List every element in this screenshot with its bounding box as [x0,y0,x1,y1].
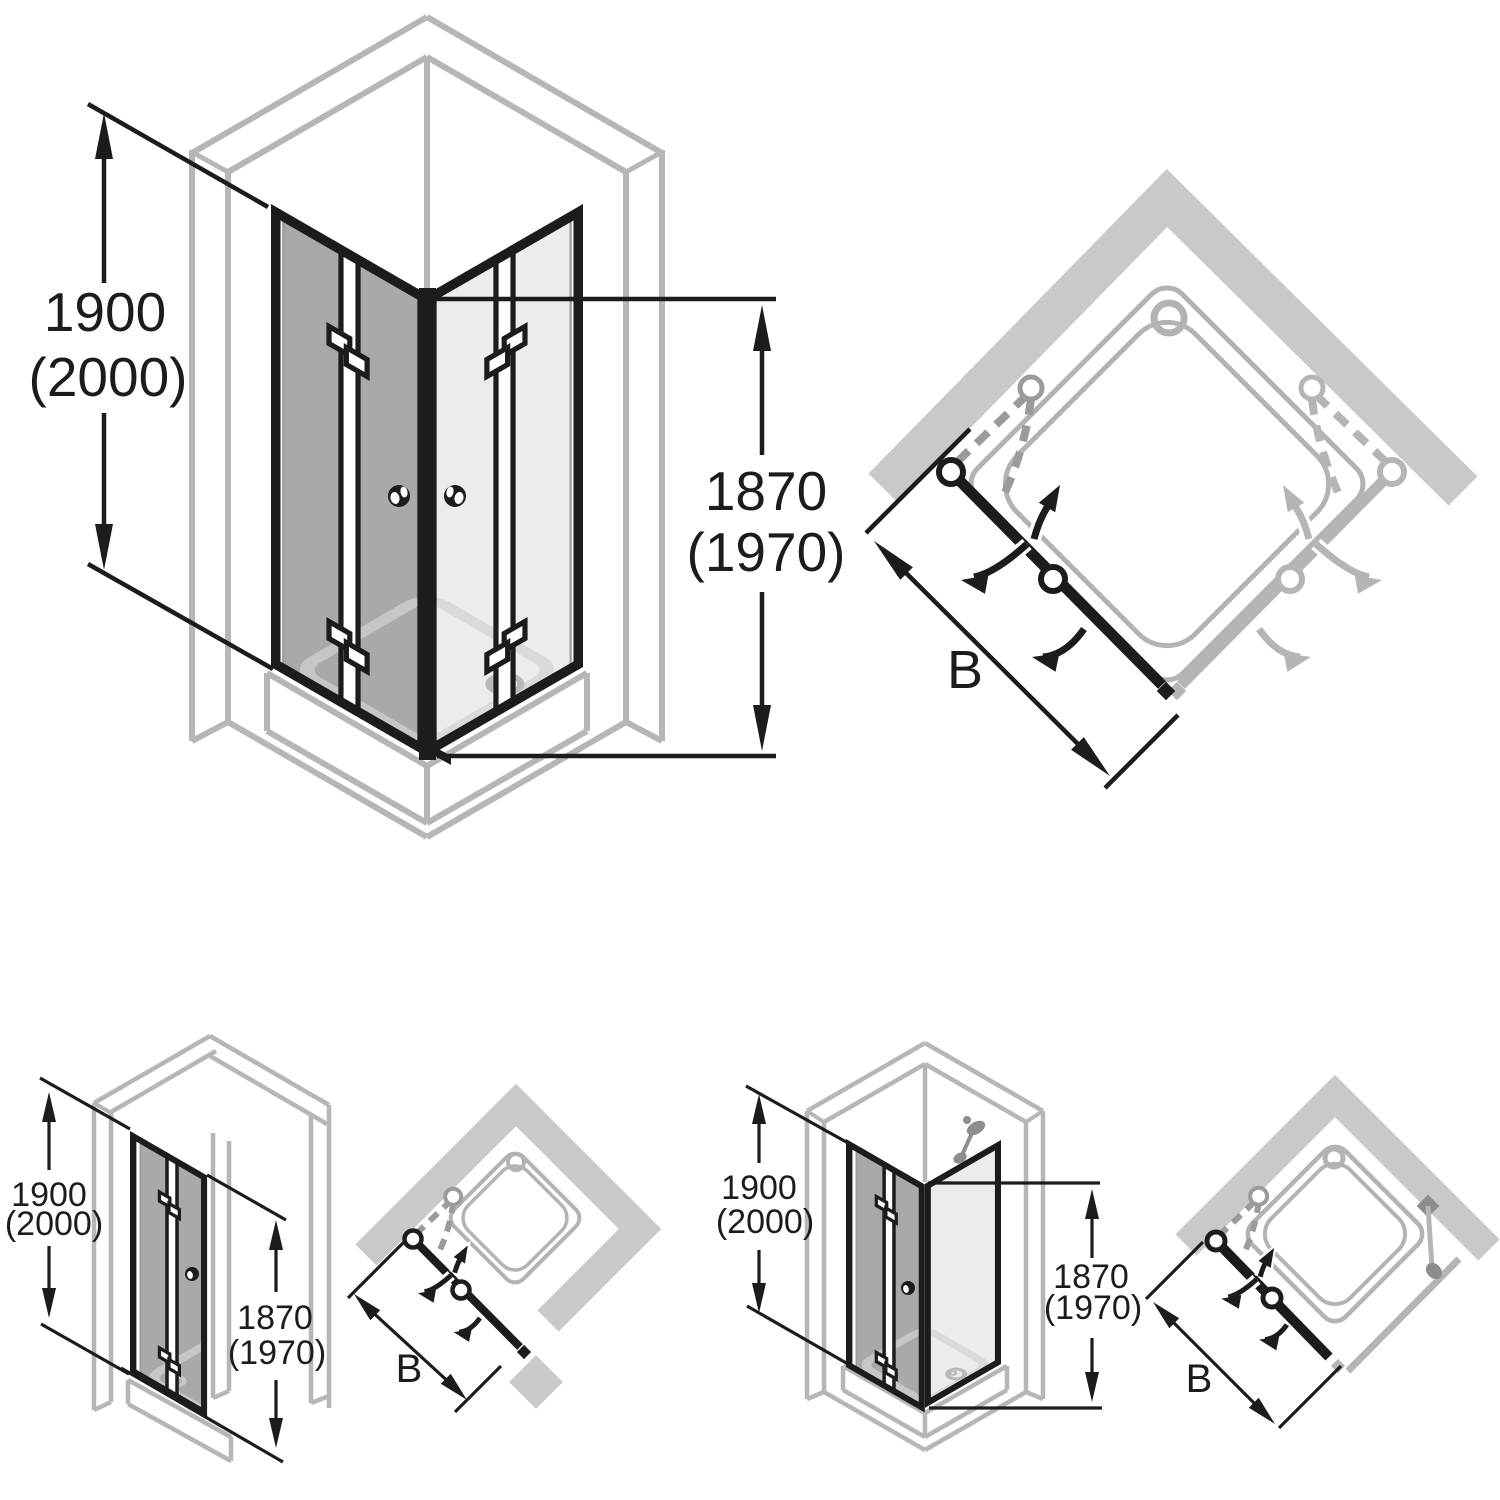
svg-text:B: B [947,640,983,700]
svg-text:(2000): (2000) [5,1205,103,1243]
svg-text:(1970): (1970) [687,521,846,583]
svg-text:1870: 1870 [705,460,827,522]
svg-text:(2000): (2000) [716,1203,814,1241]
svg-text:B: B [1186,1357,1213,1401]
svg-text:1900: 1900 [721,1169,797,1207]
svg-text:1870: 1870 [237,1299,313,1337]
svg-text:1900: 1900 [44,281,166,343]
svg-text:(1970): (1970) [228,1334,326,1372]
svg-text:(1970): (1970) [1044,1289,1142,1327]
svg-text:B: B [396,1347,423,1391]
svg-text:(2000): (2000) [29,346,188,408]
